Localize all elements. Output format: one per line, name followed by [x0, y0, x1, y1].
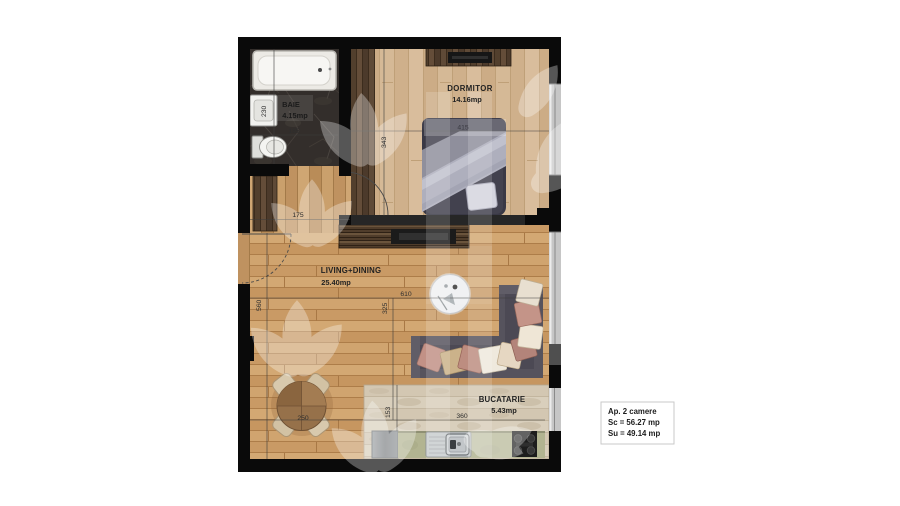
- svg-text:360: 360: [456, 413, 468, 420]
- svg-text:343: 343: [381, 136, 388, 148]
- svg-text:325: 325: [382, 302, 389, 314]
- svg-text:560: 560: [256, 299, 263, 311]
- svg-text:230: 230: [261, 105, 268, 117]
- svg-text:250: 250: [297, 415, 309, 422]
- svg-text:Ap. 2 camere: Ap. 2 camere: [608, 407, 657, 416]
- svg-text:175: 175: [292, 212, 304, 219]
- svg-text:415: 415: [457, 125, 469, 132]
- svg-text:185: 185: [288, 128, 300, 135]
- svg-text:Su = 49.14 mp: Su = 49.14 mp: [608, 429, 660, 438]
- svg-text:14.16mp: 14.16mp: [452, 95, 482, 104]
- svg-text:BUCATARIE: BUCATARIE: [479, 395, 526, 404]
- svg-text:Sc = 56.27 mp: Sc = 56.27 mp: [608, 418, 660, 427]
- svg-text:DORMITOR: DORMITOR: [447, 84, 493, 93]
- svg-text:BAIE: BAIE: [282, 100, 300, 109]
- svg-text:610: 610: [400, 291, 412, 298]
- svg-text:25.40mp: 25.40mp: [321, 278, 351, 287]
- svg-text:153: 153: [385, 406, 392, 418]
- svg-text:5.43mp: 5.43mp: [491, 406, 517, 415]
- svg-text:4.15mp: 4.15mp: [282, 111, 308, 120]
- svg-text:LIVING+DINING: LIVING+DINING: [321, 266, 381, 275]
